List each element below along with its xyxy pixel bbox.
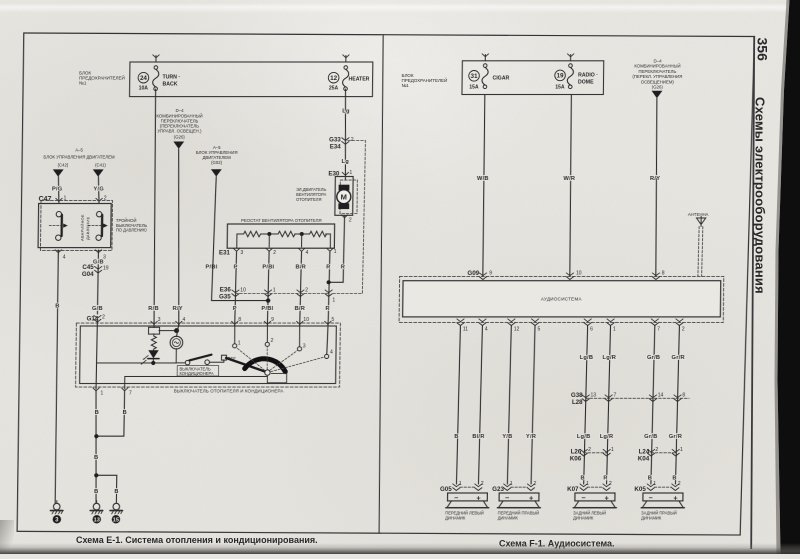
svg-text:Схемы электрооборудования: Схемы электрооборудования	[753, 97, 768, 294]
svg-text:356: 356	[755, 38, 771, 62]
